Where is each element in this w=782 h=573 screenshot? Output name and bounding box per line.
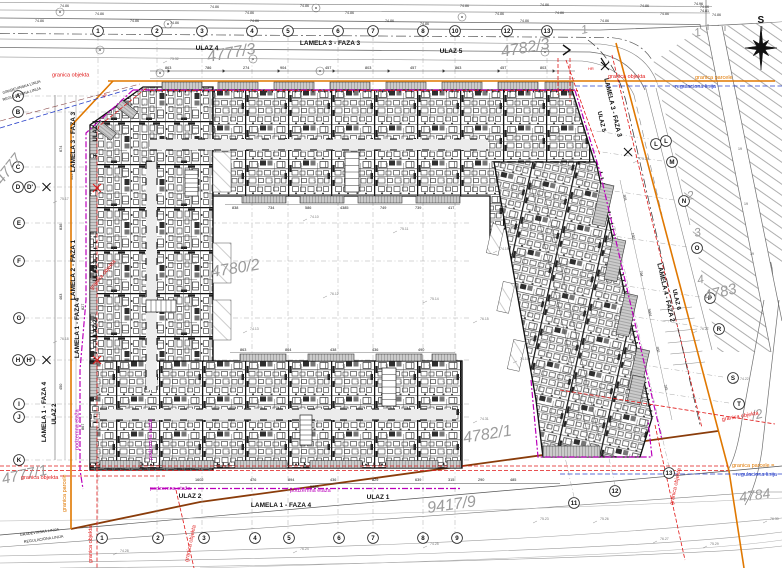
svg-text:19: 19 xyxy=(744,202,748,206)
svg-text:74.86: 74.86 xyxy=(460,4,469,8)
svg-text:274: 274 xyxy=(243,66,249,70)
svg-text:76.21: 76.21 xyxy=(700,327,709,331)
svg-text:76.24: 76.24 xyxy=(300,547,309,551)
svg-text:586: 586 xyxy=(305,206,311,210)
svg-text:R: R xyxy=(717,326,722,333)
svg-text:457: 457 xyxy=(500,66,506,70)
svg-text:74.86: 74.86 xyxy=(35,19,44,23)
svg-text:74.86: 74.86 xyxy=(345,11,354,15)
svg-text:LAMELA 3 - FAZA 3: LAMELA 3 - FAZA 3 xyxy=(300,40,361,47)
svg-text:6: 6 xyxy=(336,28,340,35)
svg-text:10: 10 xyxy=(452,28,459,35)
svg-text:436: 436 xyxy=(372,348,378,352)
svg-text:3: 3 xyxy=(202,535,206,542)
svg-text:827: 827 xyxy=(81,304,85,310)
svg-text:J: J xyxy=(17,414,21,421)
svg-text:74.28: 74.28 xyxy=(120,549,129,553)
svg-text:76.15: 76.15 xyxy=(480,317,489,321)
svg-text:ULAZ 2: ULAZ 2 xyxy=(179,493,202,500)
svg-text:749: 749 xyxy=(380,206,386,210)
svg-text:4385: 4385 xyxy=(340,206,348,210)
svg-text:75.14: 75.14 xyxy=(430,297,439,301)
svg-text:75.20: 75.20 xyxy=(640,157,649,161)
svg-text:74.22: 74.22 xyxy=(740,377,749,381)
svg-text:74.86: 74.86 xyxy=(95,12,104,16)
svg-text:438: 438 xyxy=(330,348,336,352)
svg-text:74.86: 74.86 xyxy=(385,19,394,23)
svg-text:74.86: 74.86 xyxy=(250,19,259,23)
svg-text:ULAZ 2: ULAZ 2 xyxy=(93,319,99,341)
svg-text:1602: 1602 xyxy=(195,478,203,482)
svg-text:74.13: 74.13 xyxy=(250,327,259,331)
svg-text:HR: HR xyxy=(588,66,594,71)
svg-text:734: 734 xyxy=(268,206,274,210)
svg-text:75.32: 75.32 xyxy=(170,57,179,61)
svg-text:5: 5 xyxy=(287,535,291,542)
svg-text:granica parcele: granica parcele xyxy=(62,474,68,512)
svg-text:E: E xyxy=(17,220,21,227)
svg-text:LAMELA 2 - FAZA 1: LAMELA 2 - FAZA 1 xyxy=(70,240,77,301)
svg-text:K: K xyxy=(17,457,22,464)
svg-text:7: 7 xyxy=(371,28,375,35)
svg-text:74.86: 74.86 xyxy=(60,4,69,8)
svg-text:S: S xyxy=(731,375,735,382)
svg-text:4: 4 xyxy=(253,535,257,542)
svg-text:904: 904 xyxy=(280,66,286,70)
svg-text:11: 11 xyxy=(571,500,578,507)
svg-text:894: 894 xyxy=(288,478,294,482)
svg-text:podzemna etaža: podzemna etaža xyxy=(150,486,192,492)
svg-text:290: 290 xyxy=(478,478,484,482)
svg-text:457: 457 xyxy=(325,66,331,70)
svg-text:829: 829 xyxy=(372,478,378,482)
svg-text:1: 1 xyxy=(96,28,100,35)
svg-text:12: 12 xyxy=(612,488,619,495)
svg-text:75.11: 75.11 xyxy=(400,227,409,231)
svg-text:3: 3 xyxy=(200,28,204,35)
svg-text:864: 864 xyxy=(285,348,291,352)
svg-text:674: 674 xyxy=(59,146,63,152)
svg-text:S: S xyxy=(758,15,765,26)
svg-text:75.29: 75.29 xyxy=(710,542,719,546)
svg-text:B: B xyxy=(16,109,21,116)
svg-text:76.18: 76.18 xyxy=(60,337,69,341)
svg-text:867: 867 xyxy=(81,424,85,430)
svg-text:L: L xyxy=(664,138,668,145)
svg-text:4: 4 xyxy=(250,28,254,35)
svg-text:19: 19 xyxy=(738,147,742,151)
svg-text:803: 803 xyxy=(365,66,371,70)
svg-text:803: 803 xyxy=(540,66,546,70)
svg-text:436: 436 xyxy=(330,478,336,482)
svg-text:836: 836 xyxy=(59,224,63,230)
svg-text:L: L xyxy=(654,141,658,148)
svg-text:6: 6 xyxy=(337,535,341,542)
svg-text:450: 450 xyxy=(59,384,63,390)
svg-text:8: 8 xyxy=(421,28,425,35)
svg-text:19: 19 xyxy=(750,252,754,256)
svg-text:D': D' xyxy=(27,184,33,191)
svg-text:315: 315 xyxy=(448,478,454,482)
svg-text:9: 9 xyxy=(455,535,459,542)
svg-text:granica objekta: granica objekta xyxy=(52,73,90,79)
svg-text:76.12: 76.12 xyxy=(330,292,339,296)
svg-text:granica objekta: granica objekta xyxy=(21,475,59,481)
svg-text:ULAZ 4: ULAZ 4 xyxy=(93,120,99,142)
svg-text:12: 12 xyxy=(504,28,511,35)
svg-text:74.86: 74.86 xyxy=(520,19,529,23)
svg-text:LAMELA 1 - FAZA 4: LAMELA 1 - FAZA 4 xyxy=(41,382,48,443)
svg-text:74.86: 74.86 xyxy=(130,19,139,23)
svg-text:5: 5 xyxy=(286,28,290,35)
svg-text:74.31: 74.31 xyxy=(480,417,489,421)
svg-text:D: D xyxy=(16,184,21,191)
svg-text:863: 863 xyxy=(165,66,171,70)
svg-text:1: 1 xyxy=(100,535,104,542)
svg-text:granica parcele: granica parcele xyxy=(695,75,733,81)
svg-text:H: H xyxy=(16,357,21,364)
svg-text:podzemna etaža: podzemna etaža xyxy=(290,488,332,494)
svg-text:739: 739 xyxy=(415,206,421,210)
svg-text:75.26: 75.26 xyxy=(600,517,609,521)
svg-text:76.30: 76.30 xyxy=(770,517,779,521)
svg-text:463: 463 xyxy=(59,294,63,300)
svg-text:74.81: 74.81 xyxy=(700,9,709,13)
svg-text:490: 490 xyxy=(418,348,424,352)
svg-text:G: G xyxy=(17,315,22,322)
svg-text:74.86: 74.86 xyxy=(210,5,219,9)
svg-text:7: 7 xyxy=(371,535,375,542)
svg-text:M: M xyxy=(669,159,674,166)
svg-text:74.86: 74.86 xyxy=(600,19,609,23)
svg-text:74.86: 74.86 xyxy=(660,12,669,16)
svg-text:regulaciona linija: regulaciona linija xyxy=(675,84,717,90)
svg-text:ULAZ 2: ULAZ 2 xyxy=(52,403,58,425)
svg-text:2: 2 xyxy=(156,535,160,542)
svg-text:H': H' xyxy=(27,357,33,364)
svg-text:podzemna etaža: podzemna etaža xyxy=(148,418,154,460)
svg-text:N: N xyxy=(682,198,687,205)
svg-text:LAMELA 3 - FAZA 3: LAMELA 3 - FAZA 3 xyxy=(70,112,77,173)
svg-text:ULAZ 1: ULAZ 1 xyxy=(367,494,390,501)
svg-text:13: 13 xyxy=(544,28,551,35)
svg-text:2: 2 xyxy=(155,28,159,35)
svg-text:ULAZ 4: ULAZ 4 xyxy=(196,45,219,52)
svg-text:LAMELA 1 - FAZA 4: LAMELA 1 - FAZA 4 xyxy=(74,298,81,359)
svg-text:417: 417 xyxy=(448,206,454,210)
svg-text:74.19: 74.19 xyxy=(500,247,509,251)
svg-text:74.16: 74.16 xyxy=(520,357,529,361)
svg-text:granica parcele =: granica parcele = xyxy=(732,463,774,469)
svg-text:74.86: 74.86 xyxy=(495,12,504,16)
svg-text:74.86: 74.86 xyxy=(555,11,564,15)
svg-text:granica objekta: granica objekta xyxy=(88,525,94,563)
svg-text:786: 786 xyxy=(205,66,211,70)
svg-text:74.86: 74.86 xyxy=(170,21,179,25)
svg-text:74.86: 74.86 xyxy=(540,3,549,7)
svg-text:838: 838 xyxy=(232,206,238,210)
svg-text:O: O xyxy=(695,245,700,252)
svg-text:485: 485 xyxy=(510,478,516,482)
svg-text:regulaciona linija: regulaciona linija xyxy=(736,472,778,478)
svg-text:76.27: 76.27 xyxy=(660,537,669,541)
svg-text:74.10: 74.10 xyxy=(310,215,319,219)
svg-text:75.17: 75.17 xyxy=(60,197,69,201)
svg-text:75.23: 75.23 xyxy=(540,517,549,521)
svg-text:74.25: 74.25 xyxy=(430,542,439,546)
svg-text:podzemna etaža: podzemna etaža xyxy=(75,408,81,450)
svg-text:863: 863 xyxy=(455,66,461,70)
svg-text:74.86: 74.86 xyxy=(640,4,649,8)
svg-text:granica objekta: granica objekta xyxy=(608,74,646,80)
svg-text:74.86: 74.86 xyxy=(300,4,309,8)
svg-text:T: T xyxy=(737,401,741,408)
svg-text:74.86: 74.86 xyxy=(712,13,721,17)
svg-text:639: 639 xyxy=(415,478,421,482)
svg-text:476: 476 xyxy=(250,478,256,482)
svg-text:8: 8 xyxy=(421,535,425,542)
svg-text:F: F xyxy=(17,258,21,265)
svg-text:ULAZ 5: ULAZ 5 xyxy=(440,48,463,55)
svg-text:457: 457 xyxy=(410,66,416,70)
svg-text:13: 13 xyxy=(666,470,673,477)
svg-text:863: 863 xyxy=(240,348,246,352)
svg-text:74.86: 74.86 xyxy=(245,11,254,15)
svg-text:I: I xyxy=(18,401,20,408)
svg-text:LAMELA 1 - FAZA 4: LAMELA 1 - FAZA 4 xyxy=(251,502,312,509)
svg-text:74.96: 74.96 xyxy=(694,2,703,6)
